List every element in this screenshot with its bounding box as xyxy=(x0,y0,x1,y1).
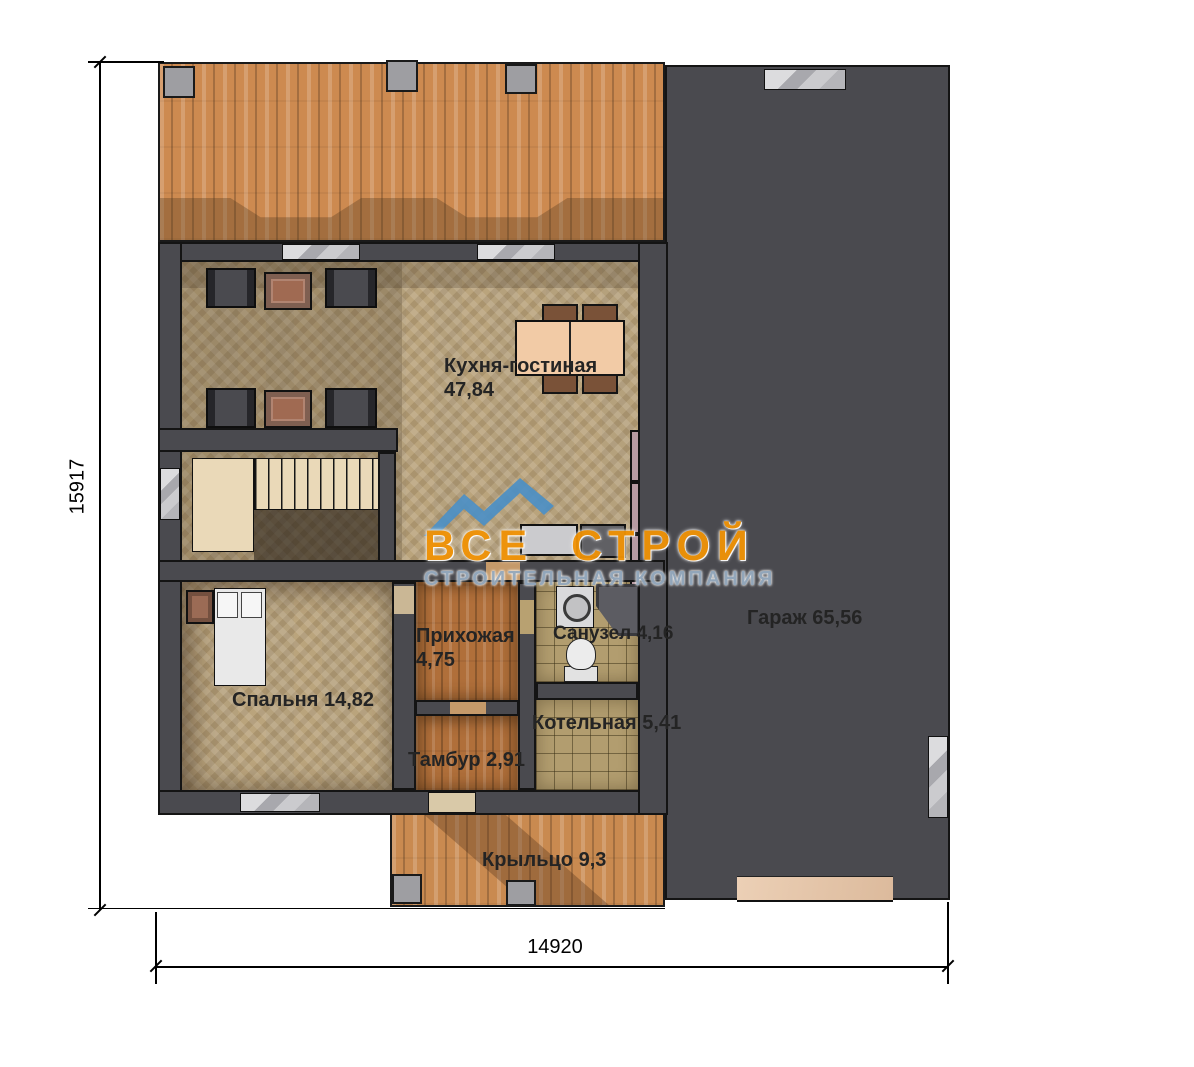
garage-right-window xyxy=(928,736,948,818)
room-label-bathroom: Санузел 4,16 xyxy=(553,622,673,646)
bedroom-window xyxy=(240,793,320,812)
house-bottom-wall xyxy=(158,790,665,815)
stairs-side-wall xyxy=(378,452,396,562)
room-name: Гараж xyxy=(747,607,807,629)
dimension-label-height: 15917 xyxy=(67,447,90,527)
coffee-table xyxy=(264,390,312,428)
armchair xyxy=(206,268,256,308)
room-label-kitchen-living: Кухня-гостиная 47,84 xyxy=(444,354,597,402)
pillow xyxy=(217,592,238,618)
vestibule-door xyxy=(450,702,486,714)
garage-door-opening xyxy=(737,876,893,902)
room-label-vestibule: Тамбур 2,91 xyxy=(408,748,525,772)
porch-post xyxy=(392,874,422,904)
dimension-line-vertical xyxy=(99,62,101,910)
armchair xyxy=(206,388,256,428)
pillow xyxy=(241,592,262,618)
room-area: 5,41 xyxy=(642,712,681,734)
room-name: Крыльцо xyxy=(482,849,573,871)
porch-post xyxy=(506,880,536,906)
room-label-hallway: Прихожая 4,75 xyxy=(416,624,515,672)
armchair xyxy=(325,388,377,428)
watermark-title: ВСЕ СТРОЙ xyxy=(424,522,755,571)
watermark-subtitle: СТРОИТЕЛЬНАЯ КОМПАНИЯ xyxy=(424,568,775,591)
room-name: Прихожая xyxy=(416,624,515,648)
bathroom-door xyxy=(520,600,534,634)
bedroom-door xyxy=(394,586,414,614)
room-label-porch: Крыльцо 9,3 xyxy=(482,848,606,872)
garage-wall xyxy=(665,65,950,900)
floor-plan: ВСЕ СТРОЙ СТРОИТЕЛЬНАЯ КОМПАНИЯ Кухня-го… xyxy=(0,0,1194,1067)
room-label-bedroom: Спальня 14,82 xyxy=(232,688,374,712)
room-area: 9,3 xyxy=(579,849,607,871)
room-name: Санузел xyxy=(553,623,631,644)
house-top-wall xyxy=(158,242,665,262)
room-name: Кухня-гостиная xyxy=(444,354,597,378)
stairs xyxy=(254,458,380,510)
house-left-wall xyxy=(158,242,182,815)
porch-door xyxy=(428,792,476,813)
room-name: Тамбур xyxy=(408,749,481,771)
under-stairs-shadow xyxy=(254,510,380,560)
room-area: 65,56 xyxy=(812,607,862,629)
dimension-extension xyxy=(88,908,665,909)
room-area: 4,16 xyxy=(636,623,673,644)
deck-post xyxy=(163,66,195,98)
room-name: Спальня xyxy=(232,689,318,711)
room-area: 4,75 xyxy=(416,648,515,672)
washing-machine-drum xyxy=(563,594,591,622)
garage-top-window xyxy=(764,69,846,90)
armchair xyxy=(325,268,377,308)
living-mid-wall xyxy=(158,428,398,452)
dimension-label-width: 14920 xyxy=(515,936,595,959)
dimension-extension xyxy=(155,912,157,984)
dimension-extension xyxy=(947,902,949,984)
living-window xyxy=(477,244,555,260)
bath-boiler-wall xyxy=(536,682,638,700)
room-name: Котельная xyxy=(532,712,637,734)
room-area: 2,91 xyxy=(486,749,525,771)
deck-post xyxy=(386,60,418,92)
left-wall-window xyxy=(160,468,180,520)
nightstand xyxy=(186,590,214,624)
room-area: 14,82 xyxy=(324,689,374,711)
room-area: 47,84 xyxy=(444,378,597,402)
stair-landing xyxy=(192,458,254,552)
room-label-garage: Гараж 65,56 xyxy=(747,606,862,630)
deck-post xyxy=(505,64,537,94)
living-window xyxy=(282,244,360,260)
coffee-table xyxy=(264,272,312,310)
room-label-boiler: Котельная 5,41 xyxy=(532,711,681,735)
dimension-line-horizontal xyxy=(155,966,948,968)
